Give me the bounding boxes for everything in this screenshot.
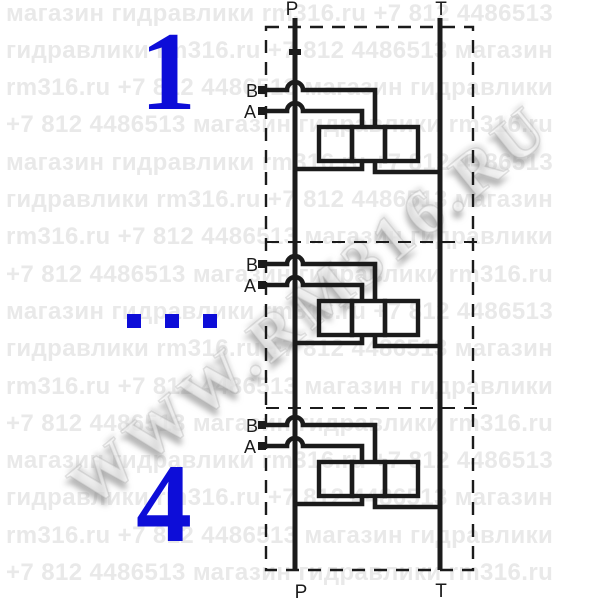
a-label-section-2: A: [244, 276, 256, 296]
t-label-top: T: [435, 0, 447, 20]
valve-section-1: [258, 82, 442, 172]
t-label-bottom: T: [435, 581, 447, 600]
section-number-last: 4: [136, 448, 192, 560]
hydraulic-schematic: P T P T B A B A B A: [0, 0, 600, 600]
valve-section-3: [258, 417, 442, 507]
diagram-canvas: магазин гидравлики rm316.ru +7 812 44865…: [0, 0, 600, 600]
ellipsis-dot: [165, 314, 179, 328]
p-label-top: P: [286, 0, 299, 20]
b-label-section-3: B: [246, 416, 258, 436]
ellipsis-dot: [127, 314, 141, 328]
b-label-section-2: B: [246, 255, 258, 275]
section-number-first: 1: [140, 16, 196, 128]
ellipsis-dot: [203, 314, 217, 328]
p-label-bottom: P: [295, 582, 308, 600]
a-label-section-1: A: [244, 102, 256, 122]
valve-section-2: [258, 256, 442, 346]
p-line-node: [289, 49, 301, 55]
b-label-section-1: B: [246, 81, 258, 101]
a-label-section-3: A: [244, 437, 256, 457]
